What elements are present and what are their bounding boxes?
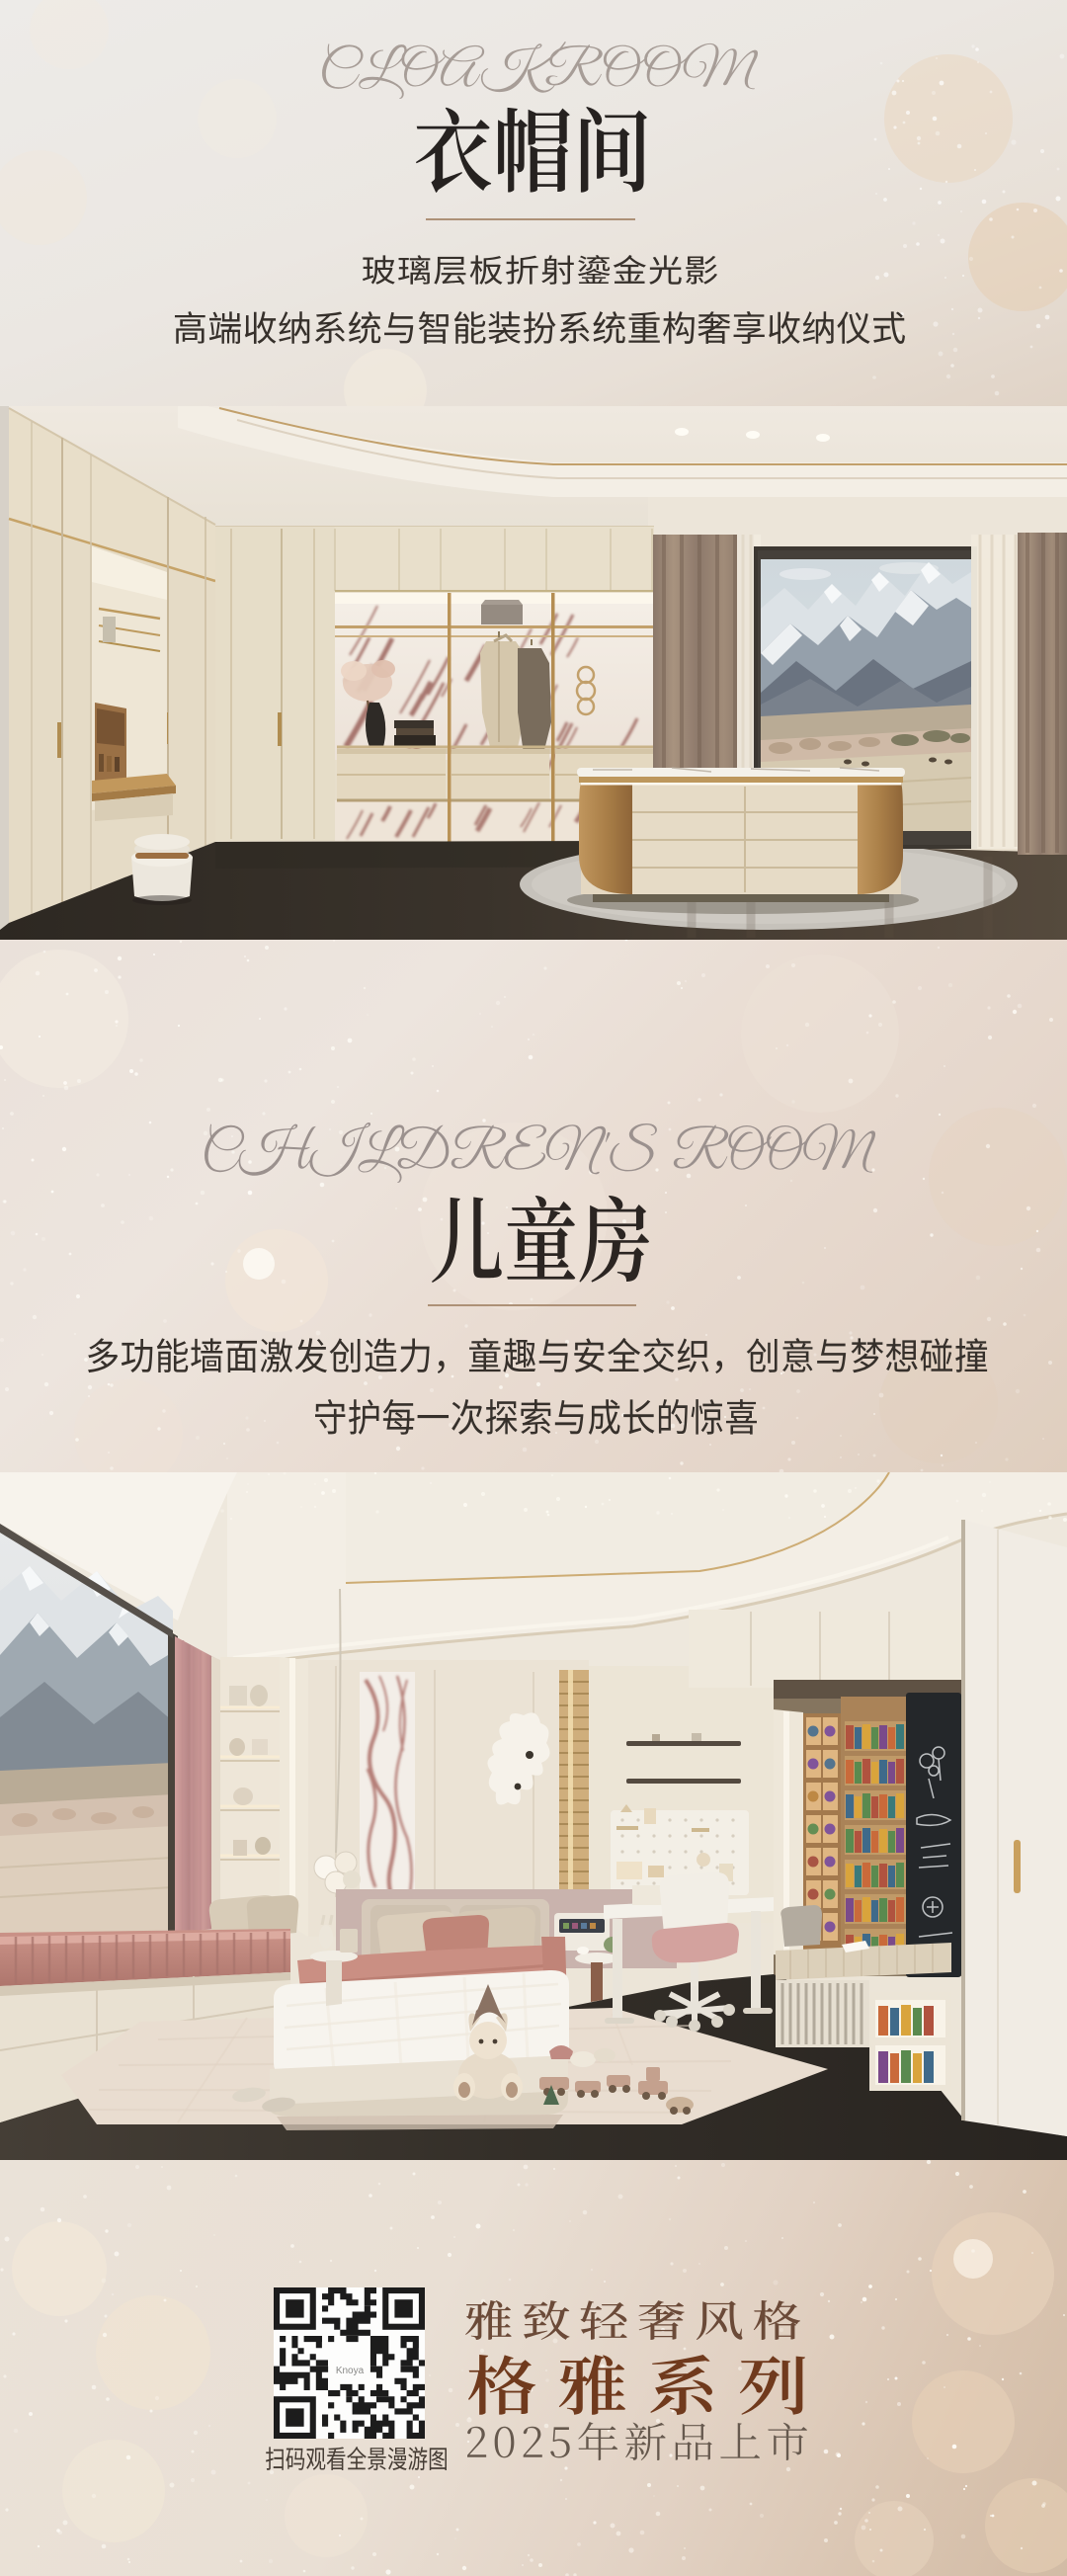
svg-text:Knoya: Knoya: [336, 2366, 365, 2376]
